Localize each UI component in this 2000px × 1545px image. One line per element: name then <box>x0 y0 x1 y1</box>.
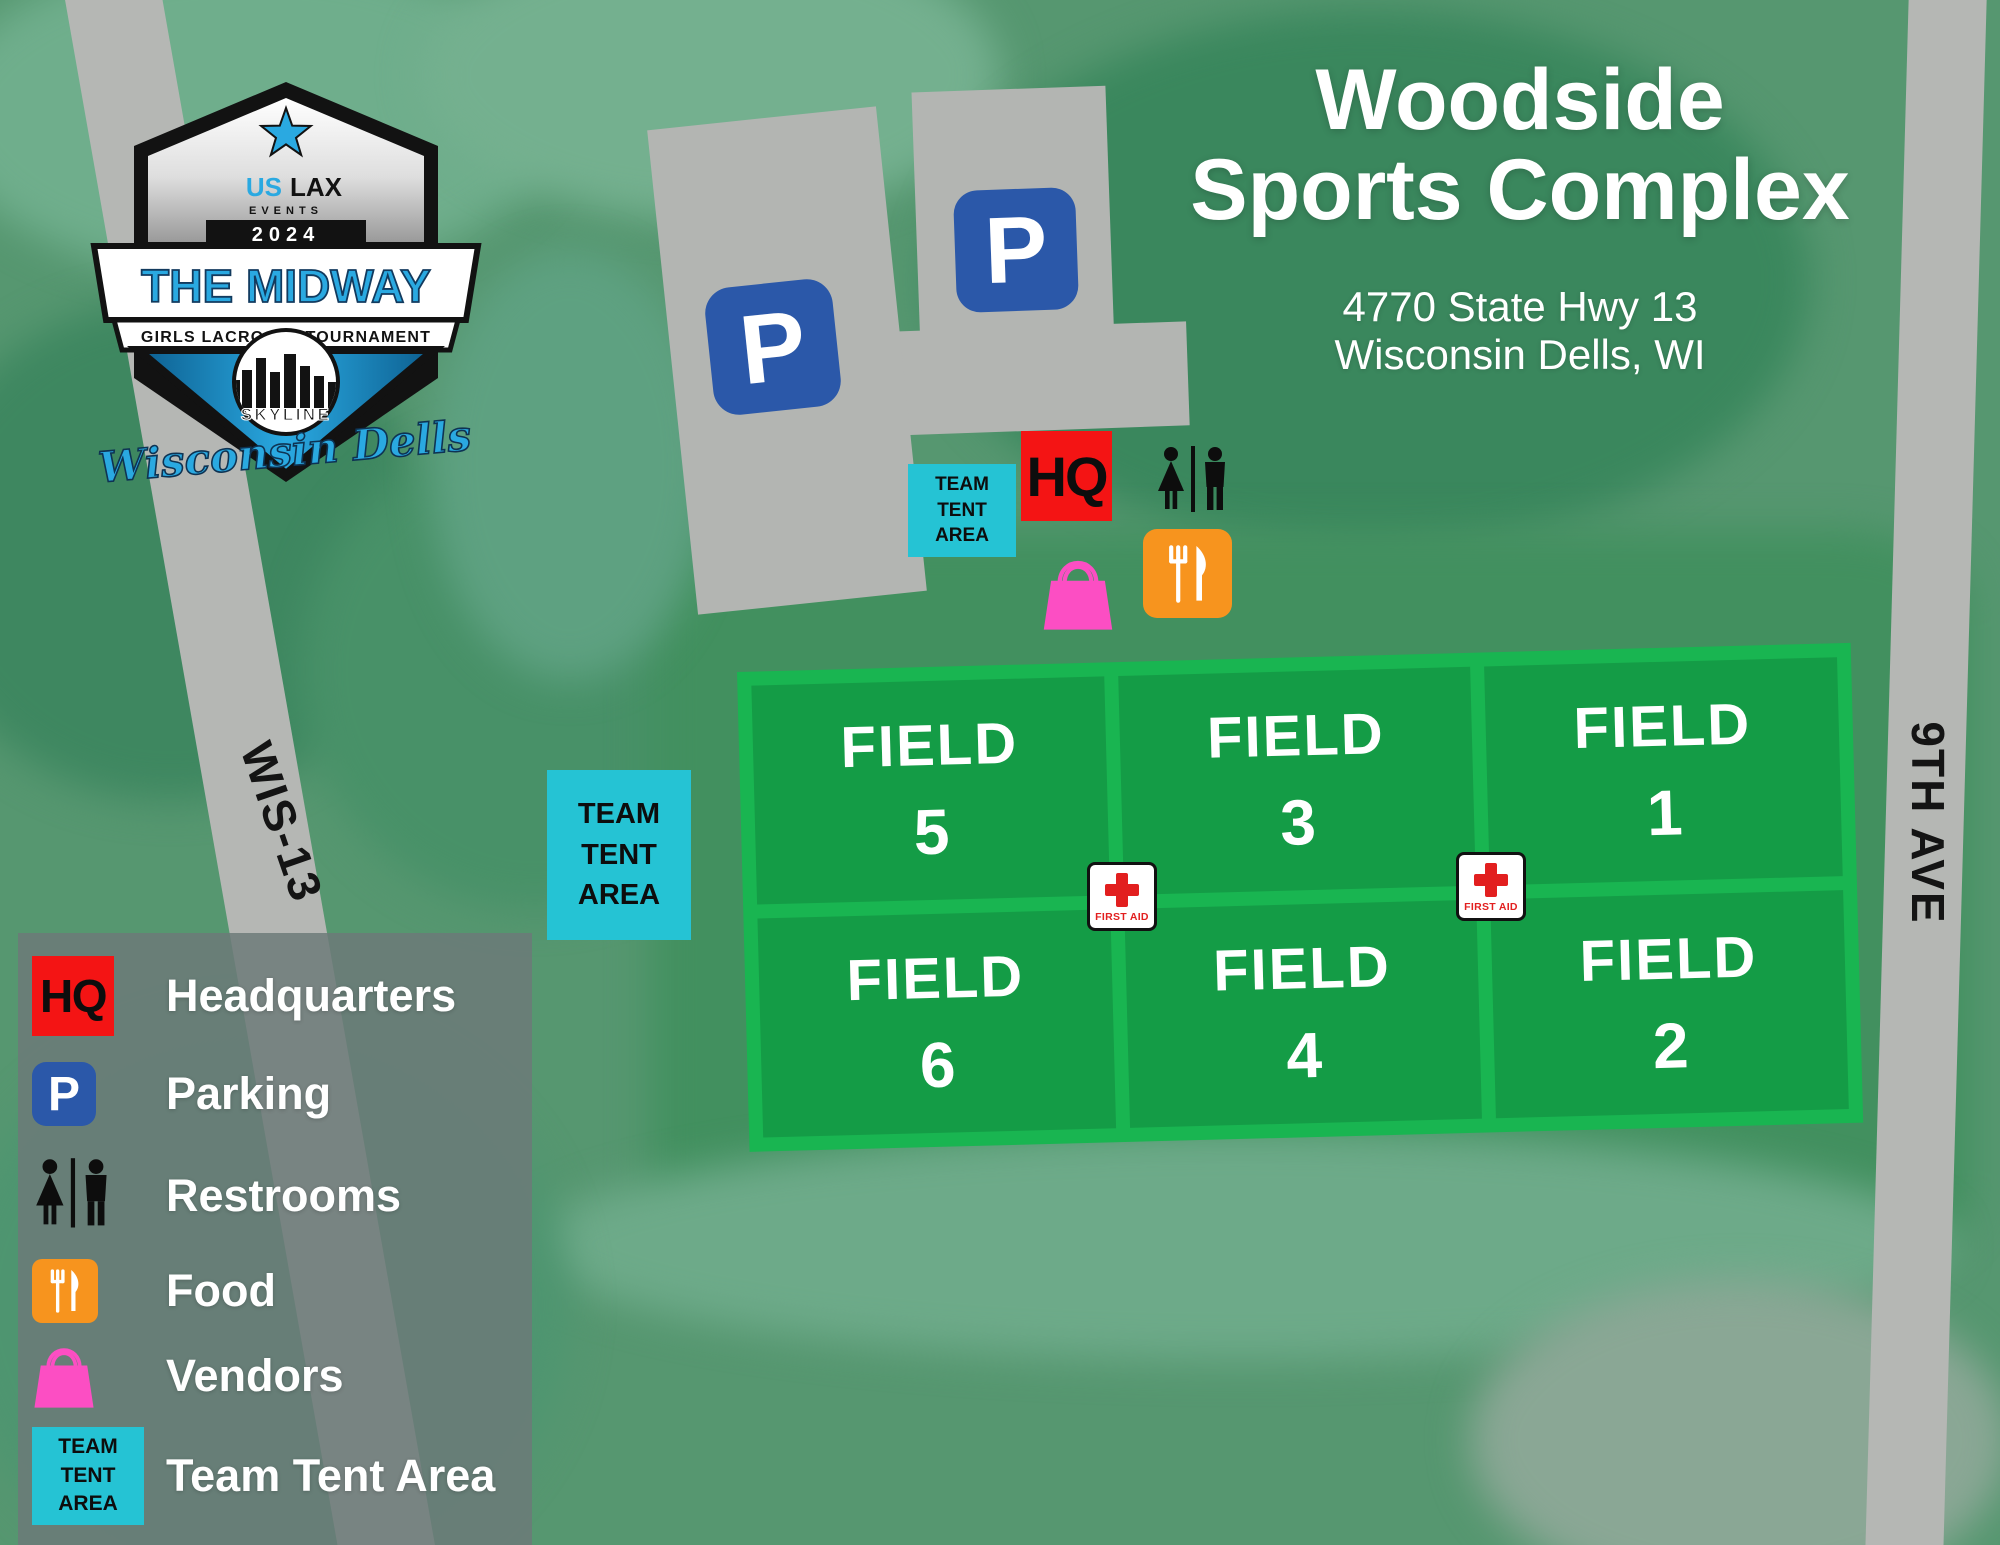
tent-line: TEAM <box>58 1433 118 1461</box>
team-tent-area-marker: TEAM TENT AREA <box>908 464 1016 557</box>
map-canvas: WIS-13 9TH AVE P P FIELD 5 FIELD 3 FIELD… <box>0 0 2000 1545</box>
legend-label-restrooms: Restrooms <box>166 1170 401 1222</box>
first-aid-cross-icon <box>1474 863 1508 897</box>
venue-title-line2: Sports Complex <box>1130 145 1910 235</box>
legend-icon-slot <box>32 1259 166 1323</box>
logo-org-us: US <box>246 172 282 202</box>
field-3: FIELD 3 <box>1118 667 1476 895</box>
legend-label-team-tent: Team Tent Area <box>166 1450 495 1502</box>
headquarters-marker: HQ <box>1021 431 1112 521</box>
team-tent-icon: TEAM TENT AREA <box>32 1427 144 1525</box>
fields-block: FIELD 5 FIELD 3 FIELD 1 FIELD 6 FIELD 4 … <box>737 643 1863 1152</box>
restrooms-icon <box>32 1157 116 1235</box>
tent-line: TEAM <box>935 472 989 498</box>
tent-line: AREA <box>58 1490 118 1518</box>
field-5: FIELD 5 <box>751 676 1109 904</box>
legend-label-vendors: Vendors <box>166 1350 344 1402</box>
food-icon <box>1143 529 1232 618</box>
first-aid-label: FIRST AID <box>1095 911 1149 923</box>
logo-year: 2024 <box>252 224 321 246</box>
legend-label-headquarters: Headquarters <box>166 970 456 1022</box>
hq-icon-label: HQ <box>40 969 106 1023</box>
field-word: FIELD <box>1206 700 1385 772</box>
parking-icon: P <box>703 277 844 418</box>
parking-icon: P <box>953 187 1079 313</box>
hq-icon: HQ <box>32 956 114 1036</box>
address-line2: Wisconsin Dells, WI <box>1130 331 1910 379</box>
legend-label-parking: Parking <box>166 1068 331 1120</box>
tent-line: TENT <box>61 1462 116 1490</box>
tent-line: AREA <box>935 523 989 549</box>
hq-label: HQ <box>1027 444 1107 509</box>
tent-line: AREA <box>578 875 660 916</box>
field-word: FIELD <box>840 710 1019 782</box>
venue-address: 4770 State Hwy 13 Wisconsin Dells, WI <box>1130 283 1910 380</box>
field-number: 4 <box>1285 1018 1323 1093</box>
vendors-bag-icon <box>1041 549 1115 642</box>
legend-row-restrooms: Restrooms <box>32 1155 524 1237</box>
first-aid-marker: FIRST AID <box>1456 852 1526 921</box>
field-number: 5 <box>913 795 951 870</box>
team-tent-area-marker: TEAM TENT AREA <box>547 770 691 940</box>
legend-label-food: Food <box>166 1265 276 1317</box>
parking-icon: P <box>32 1062 96 1126</box>
logo-title: THE MIDWAY <box>141 260 431 312</box>
field-2: FIELD 2 <box>1491 890 1849 1118</box>
restrooms-icon <box>1154 446 1234 523</box>
first-aid-cross-icon <box>1105 873 1139 907</box>
field-number: 3 <box>1279 785 1317 860</box>
parking-icon-label: P <box>48 1067 80 1122</box>
field-4: FIELD 4 <box>1124 900 1482 1128</box>
legend-row-headquarters: HQ Headquarters <box>32 956 524 1036</box>
legend-icon-slot <box>32 1157 166 1235</box>
logo-org-lax: LAX <box>290 172 343 202</box>
parking-letter: P <box>983 195 1049 305</box>
field-word: FIELD <box>1579 923 1758 995</box>
legend-row-parking: P Parking <box>32 1061 524 1127</box>
legend-row-vendors: Vendors <box>32 1337 524 1415</box>
logo-org-sub: EVENTS <box>249 205 323 217</box>
field-word: FIELD <box>846 943 1025 1015</box>
legend-icon-slot <box>32 1338 166 1414</box>
legend-icon-slot: P <box>32 1062 166 1126</box>
logo-badge: SKYLINE <box>241 405 331 424</box>
food-icon <box>32 1259 98 1323</box>
field-number: 1 <box>1646 775 1684 850</box>
parking-letter: P <box>735 287 812 406</box>
field-1: FIELD 1 <box>1484 657 1842 885</box>
legend-row-team-tent: TEAM TENT AREA Team Tent Area <box>32 1427 524 1525</box>
first-aid-marker: FIRST AID <box>1087 862 1157 931</box>
tent-line: TENT <box>937 498 987 524</box>
field-6: FIELD 6 <box>757 909 1115 1137</box>
address-line1: 4770 State Hwy 13 <box>1130 283 1910 331</box>
field-word: FIELD <box>1573 690 1752 762</box>
vendors-bag-icon <box>32 1338 96 1414</box>
legend-row-food: Food <box>32 1259 524 1323</box>
venue-title-line1: Woodside <box>1130 55 1910 145</box>
tent-line: TENT <box>581 835 657 876</box>
field-number: 2 <box>1652 1008 1690 1083</box>
legend-panel: HQ Headquarters P Parking <box>18 933 532 1545</box>
field-number: 6 <box>919 1027 957 1102</box>
venue-title: Woodside Sports Complex <box>1130 55 1910 236</box>
first-aid-label: FIRST AID <box>1464 901 1518 913</box>
legend-icon-slot: TEAM TENT AREA <box>32 1427 166 1525</box>
legend-icon-slot: HQ <box>32 956 166 1036</box>
tournament-logo: US LAX EVENTS 2024 THE MIDWAY GIRLS LACR… <box>86 78 486 488</box>
tent-line: TEAM <box>578 794 660 835</box>
field-word: FIELD <box>1212 933 1391 1005</box>
road-label-9th-ave: 9TH AVE <box>1901 721 1955 924</box>
